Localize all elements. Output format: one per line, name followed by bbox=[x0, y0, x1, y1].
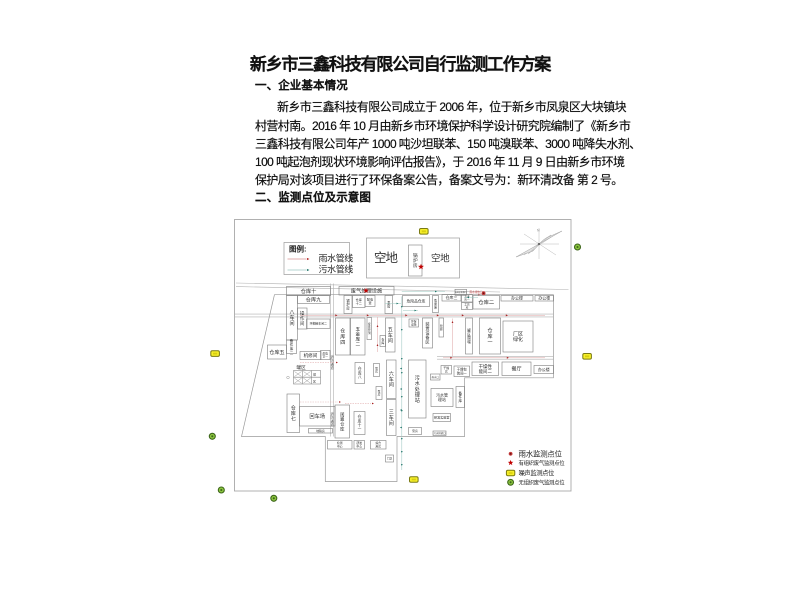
svg-text:中心: 中心 bbox=[357, 444, 363, 448]
svg-text:绿化: 绿化 bbox=[513, 336, 523, 343]
svg-text:间: 间 bbox=[388, 337, 393, 344]
svg-text:门卫: 门卫 bbox=[387, 457, 393, 461]
svg-text:罐区: 罐区 bbox=[297, 364, 307, 371]
svg-text:间: 间 bbox=[389, 382, 394, 389]
svg-text:房: 房 bbox=[387, 304, 391, 309]
svg-text:能间二: 能间二 bbox=[479, 368, 493, 375]
svg-text:区: 区 bbox=[313, 380, 316, 384]
svg-text:雨水管线: 雨水管线 bbox=[319, 253, 354, 264]
svg-text:噪声监测点位: 噪声监测点位 bbox=[519, 468, 555, 477]
svg-text:金: 金 bbox=[355, 331, 360, 337]
svg-text:间: 间 bbox=[389, 420, 394, 427]
svg-text:办公楼: 办公楼 bbox=[511, 296, 523, 301]
svg-text:雨水口: 雨水口 bbox=[432, 375, 440, 379]
svg-text:装间一: 装间一 bbox=[457, 370, 468, 375]
svg-text:仓库十: 仓库十 bbox=[301, 287, 317, 295]
svg-text:库一: 库一 bbox=[464, 298, 470, 302]
svg-text:房: 房 bbox=[375, 369, 378, 374]
svg-text:设施: 设施 bbox=[411, 322, 417, 326]
svg-text:房: 房 bbox=[378, 392, 381, 397]
svg-text:房: 房 bbox=[445, 368, 448, 373]
svg-text:库: 库 bbox=[434, 305, 437, 310]
svg-text:堰: 堰 bbox=[467, 339, 471, 344]
svg-text:办公楼: 办公楼 bbox=[538, 296, 550, 301]
svg-text:N: N bbox=[537, 229, 540, 233]
svg-text:无组织废气监测点位: 无组织废气监测点位 bbox=[519, 479, 566, 487]
svg-text:沟: 沟 bbox=[368, 331, 371, 335]
svg-text:仓库二: 仓库二 bbox=[478, 298, 494, 306]
svg-text:空地: 空地 bbox=[431, 252, 450, 264]
svg-text:仓库九: 仓库九 bbox=[306, 295, 323, 303]
svg-text:室一: 室一 bbox=[323, 354, 329, 358]
svg-text:污水管线: 污水管线 bbox=[319, 264, 354, 275]
svg-text:廊: 廊 bbox=[440, 326, 443, 331]
svg-text:仓库五: 仓库五 bbox=[269, 349, 284, 356]
svg-text:七: 七 bbox=[291, 416, 296, 423]
svg-text:有组织排放口: 有组织排放口 bbox=[455, 290, 467, 294]
svg-text:房: 房 bbox=[413, 262, 418, 269]
svg-text:回车场: 回车场 bbox=[309, 412, 325, 420]
svg-text:机修间: 机修间 bbox=[304, 352, 318, 359]
svg-text:雨水排放口: 雨水排放口 bbox=[470, 290, 483, 294]
svg-text:室: 室 bbox=[368, 300, 371, 305]
svg-text:一: 一 bbox=[358, 428, 362, 432]
svg-text:二: 二 bbox=[355, 342, 360, 347]
svg-text:一: 一 bbox=[487, 339, 492, 345]
svg-text:间: 间 bbox=[289, 320, 294, 327]
svg-text:仓库三: 仓库三 bbox=[446, 295, 458, 300]
svg-text:图例:: 图例: bbox=[289, 244, 307, 254]
svg-text:用房: 用房 bbox=[376, 444, 382, 448]
svg-text:八: 八 bbox=[358, 375, 362, 379]
svg-text:罐: 罐 bbox=[313, 372, 316, 377]
svg-text:区: 区 bbox=[425, 340, 429, 345]
svg-text:办公楼: 办公楼 bbox=[538, 367, 550, 372]
svg-text:空地: 空地 bbox=[374, 251, 399, 265]
svg-text:地磅房: 地磅房 bbox=[316, 428, 325, 433]
svg-text:道: 道 bbox=[331, 365, 335, 370]
svg-text:库: 库 bbox=[466, 305, 469, 309]
svg-text:四: 四 bbox=[340, 340, 345, 346]
svg-text:库: 库 bbox=[458, 398, 462, 403]
svg-text:理站: 理站 bbox=[438, 397, 446, 402]
svg-text:中心: 中心 bbox=[337, 444, 343, 448]
svg-text:污水排放口: 污水排放口 bbox=[433, 431, 446, 435]
svg-text:研发实验室: 研发实验室 bbox=[434, 415, 449, 420]
svg-text:十二: 十二 bbox=[356, 300, 362, 305]
svg-text:库: 库 bbox=[340, 425, 345, 432]
svg-text:二: 二 bbox=[290, 351, 294, 355]
svg-text:房: 房 bbox=[346, 305, 350, 310]
svg-text:有组织废气监测点位: 有组织废气监测点位 bbox=[519, 459, 566, 467]
svg-text:泵房: 泵房 bbox=[412, 428, 418, 433]
svg-text:间: 间 bbox=[300, 320, 304, 327]
svg-text:站: 站 bbox=[415, 397, 420, 404]
svg-text:库: 库 bbox=[381, 340, 384, 345]
svg-text:餐厅: 餐厅 bbox=[511, 366, 521, 373]
svg-text:环糊精车间二: 环糊精车间二 bbox=[310, 321, 327, 326]
svg-text:雨水监测点位: 雨水监测点位 bbox=[519, 448, 563, 458]
svg-text:危险品仓库: 危险品仓库 bbox=[407, 298, 426, 303]
